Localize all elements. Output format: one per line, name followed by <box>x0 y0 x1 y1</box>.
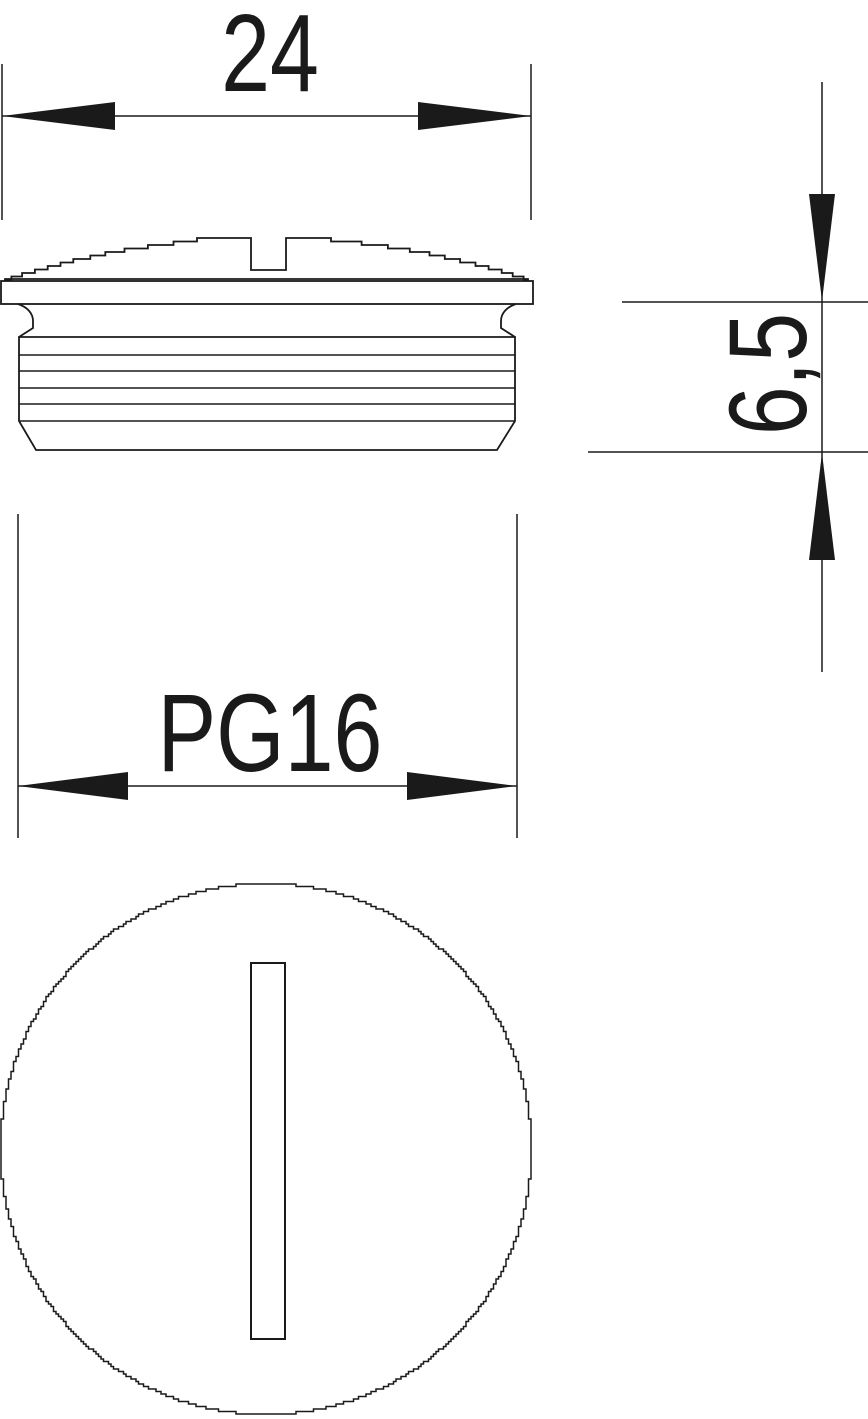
arrowhead-left <box>18 772 128 800</box>
neck-groove-left <box>18 304 33 337</box>
arrowhead-right <box>407 772 517 800</box>
arrowhead-down <box>809 194 835 301</box>
knurled-cap-profile <box>5 238 528 280</box>
arrowhead-left <box>2 102 115 130</box>
arrowhead-right <box>418 102 531 130</box>
width-dimension: 24 <box>2 0 531 220</box>
arrowhead-up <box>809 453 835 560</box>
width-dimension-label: 24 <box>221 0 319 115</box>
height-dimension: 6,5 <box>588 82 868 672</box>
thread-dimension-label: PG16 <box>157 673 382 796</box>
front-view-plug <box>1 884 531 1414</box>
drawing-canvas: 24 6,5 PG16 <box>0 0 868 1419</box>
screwdriver-slot <box>251 963 285 1339</box>
threaded-body-profile <box>19 337 515 450</box>
technical-drawing: 24 6,5 PG16 <box>0 0 868 1419</box>
flange-profile <box>1 281 533 304</box>
height-dimension-label: 6,5 <box>708 313 831 435</box>
neck-groove-right <box>501 304 516 337</box>
thread-dimension: PG16 <box>18 514 517 838</box>
side-view-plug <box>1 238 533 450</box>
